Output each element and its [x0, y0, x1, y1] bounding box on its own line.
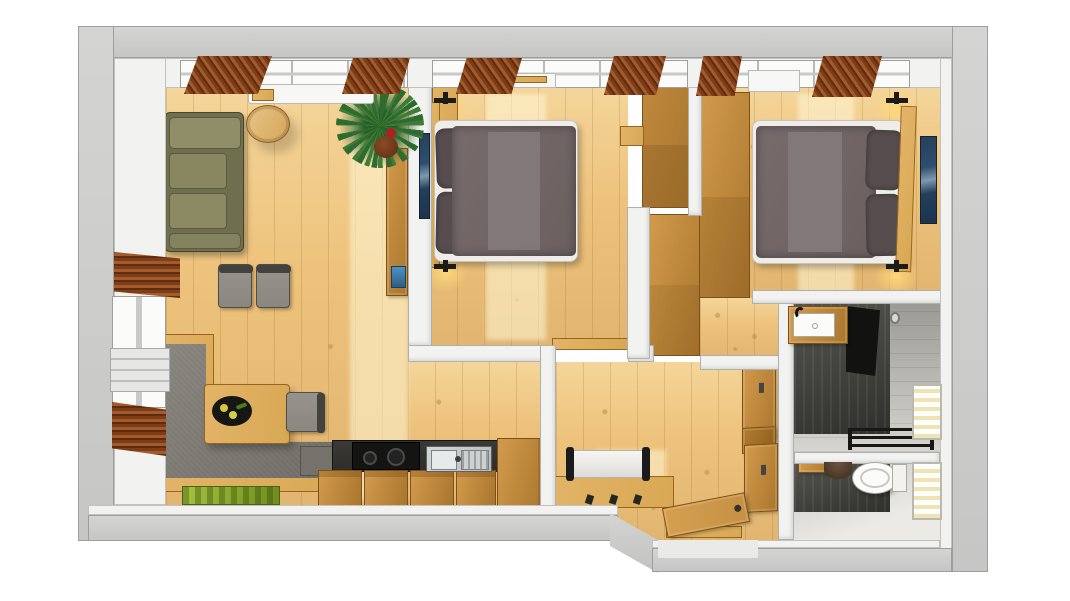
door-threshold — [552, 338, 628, 350]
bedside-shelf — [620, 126, 644, 146]
wall-lamp-icon — [894, 92, 899, 104]
wall-bedroom1-hall — [408, 345, 552, 362]
dining-chair — [256, 264, 290, 308]
serving-tray — [212, 396, 252, 426]
sink-drainer — [461, 450, 489, 470]
bedroom-2-floor-tail — [700, 298, 780, 360]
wall-lamp-icon — [894, 260, 899, 272]
sink-basin — [431, 450, 457, 470]
door-handle — [734, 504, 742, 512]
side-window-sill — [110, 348, 170, 392]
kitchen-cabinet-front — [410, 470, 454, 506]
wc-window — [912, 462, 942, 520]
bathroom-window — [912, 384, 942, 440]
sideboard-decor — [391, 266, 406, 288]
wall-bathroom-top — [752, 290, 952, 304]
curtain — [456, 58, 522, 94]
window-sill — [748, 70, 800, 92]
plant-pot — [374, 136, 398, 158]
toilet-bowl-ring — [860, 468, 890, 488]
coffee-table — [246, 105, 290, 143]
curtain — [812, 56, 882, 97]
outer-wall-top — [78, 26, 988, 58]
wardrobe-bedroom-2 — [698, 92, 750, 298]
entrance-doorway-opening — [658, 540, 758, 558]
wall-corridor-left — [627, 207, 650, 359]
wall-lamp-icon — [443, 92, 448, 104]
hall-wardrobe-door — [744, 443, 778, 513]
sofa — [164, 112, 244, 252]
cooktop — [352, 442, 420, 470]
faucet-icon — [795, 307, 805, 319]
chair-backrest — [257, 265, 291, 273]
sofa-seat-cushion — [169, 193, 227, 229]
shower — [846, 306, 880, 376]
curtain — [112, 402, 166, 456]
toilet-tank — [892, 464, 907, 492]
kitchen-cabinet-front — [364, 470, 408, 506]
tray-fruit — [220, 404, 228, 412]
dining-chair — [286, 392, 324, 432]
curtain — [696, 56, 742, 96]
hall-bench-armrest — [566, 447, 574, 481]
burner — [363, 451, 377, 465]
door-handle — [761, 465, 766, 475]
duvet-runner — [488, 132, 540, 250]
duvet-runner — [788, 132, 842, 252]
outer-wall-right — [952, 26, 988, 572]
kitchen-cabinet-front — [456, 470, 496, 506]
bedroom-2-wall-art — [920, 136, 937, 224]
chair-backrest — [219, 265, 253, 273]
sofa-chaise-cushion — [169, 117, 241, 149]
floor-plan — [0, 0, 1070, 601]
curtain — [184, 56, 272, 94]
bed-duvet — [756, 126, 876, 258]
curtain — [604, 56, 666, 95]
door-handle — [759, 383, 764, 393]
kitchen-cabinet-front — [318, 470, 362, 506]
dining-chair — [218, 264, 252, 308]
wall-lamp-icon — [443, 260, 448, 272]
hall-bench-armrest — [642, 447, 650, 481]
sofa-armrest — [169, 233, 241, 249]
built-in-closet — [648, 214, 700, 356]
outer-wall-left — [78, 26, 114, 541]
tray-herb — [236, 402, 248, 410]
burner — [387, 448, 405, 466]
sink-faucet — [455, 456, 461, 462]
wc-corner-basin — [824, 462, 852, 479]
plant-berries — [386, 128, 396, 138]
curtain — [342, 58, 410, 94]
hall-bench — [572, 450, 644, 478]
tray-fruit — [229, 411, 237, 419]
washbasin-vanity — [788, 306, 848, 344]
basin-drain — [812, 323, 818, 329]
door-mat — [182, 486, 280, 505]
outer-wall-bottom-face — [88, 505, 618, 515]
outer-wall-bottom — [88, 515, 618, 541]
sofa-seat-cushion — [169, 153, 227, 189]
curtain — [114, 252, 180, 298]
bed-duvet — [452, 126, 576, 256]
chair-backrest — [317, 393, 325, 433]
kitchen-sink — [426, 446, 492, 472]
wall-bedroom2-hall — [700, 355, 782, 370]
shower-head-icon — [890, 312, 900, 324]
